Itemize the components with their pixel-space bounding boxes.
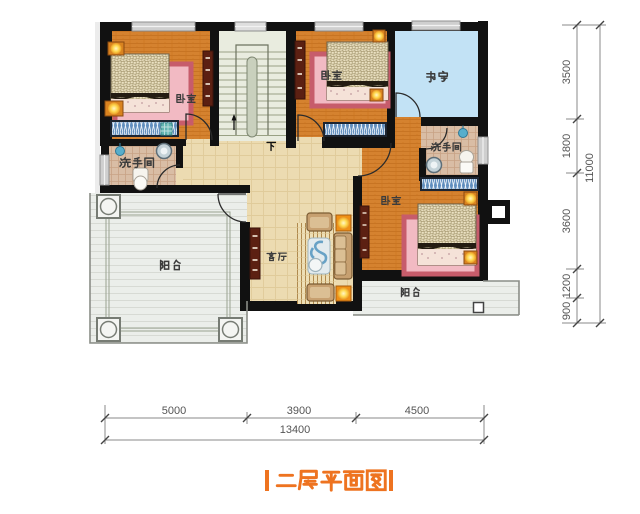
svg-text:3500: 3500 — [561, 60, 573, 84]
svg-text:5000: 5000 — [162, 405, 186, 417]
svg-text:4500: 4500 — [405, 405, 429, 417]
svg-text:3900: 3900 — [287, 405, 311, 417]
svg-text:3600: 3600 — [561, 209, 573, 233]
svg-text:1800: 1800 — [561, 134, 573, 158]
svg-text:1200: 1200 — [561, 274, 573, 298]
svg-text:900: 900 — [561, 302, 573, 320]
svg-text:11000: 11000 — [584, 153, 596, 183]
svg-text:13400: 13400 — [280, 424, 311, 436]
